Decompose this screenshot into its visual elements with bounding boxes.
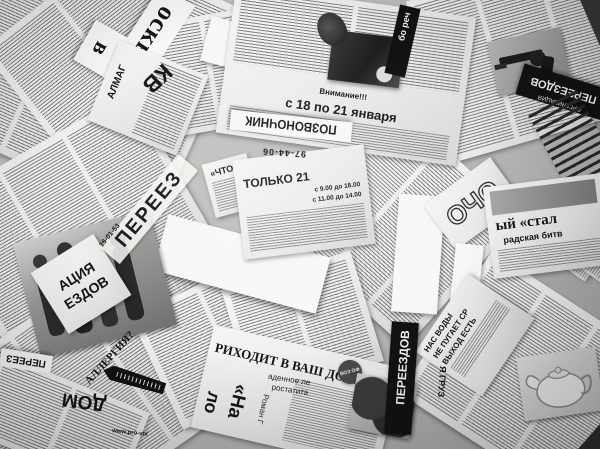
movers-ad-banner-vertical: ПЕРЕЕЗДОВ	[384, 321, 419, 435]
headline-fragment: «На	[222, 382, 251, 421]
movers-ad-headline: ПЕРЕЕЗДОВ	[393, 330, 412, 406]
advert-title: ТОЛЬКО 21	[243, 169, 311, 191]
article-photo-band	[489, 179, 597, 216]
masthead-fragment: бо реч	[396, 11, 412, 42]
teapot-photo	[516, 347, 600, 422]
byline-fragment: Роман Г	[255, 393, 271, 425]
schedule-advert-scrap: ТОЛЬКО 21 с 9.00 до 18.00 с 11.00 до 14.…	[232, 144, 375, 259]
headline-fragment: ПЕРЕЕЗ	[5, 352, 46, 369]
newspaper-collage-photo: осква в КВ АЛМАГ Внимание!!! с 18 по 21 …	[0, 0, 600, 449]
teapot-sketch	[516, 347, 600, 422]
headline-fragment: «ЧТО	[209, 163, 234, 179]
headline-fragment: ло	[199, 390, 224, 416]
headline-scrap: ый «стал радская битв	[483, 173, 600, 279]
headline-fragment: АЛМАГ	[105, 64, 129, 101]
masthead-fragment: в	[87, 37, 116, 61]
newsprint-text-lines	[246, 203, 367, 252]
